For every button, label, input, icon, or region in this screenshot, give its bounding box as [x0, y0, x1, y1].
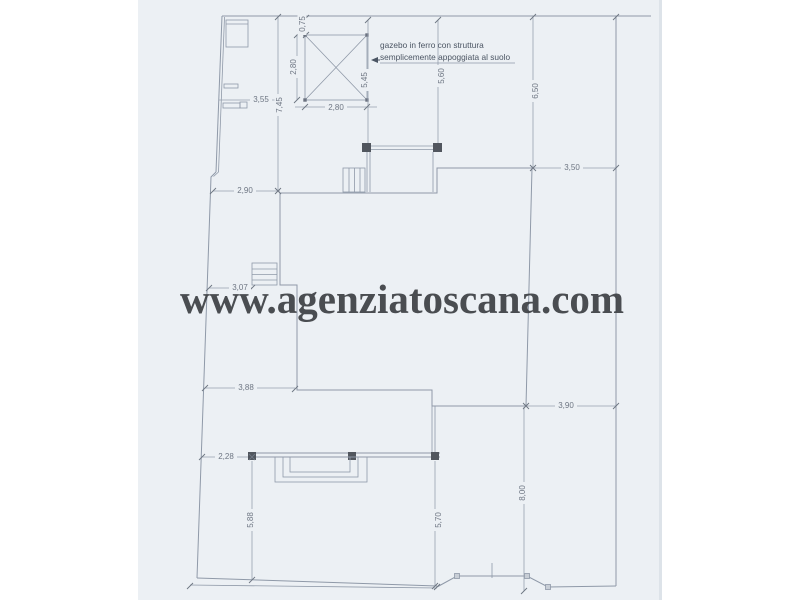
dim-label: 2,80 — [289, 59, 298, 75]
dim-label: 2,80 — [328, 103, 344, 112]
dim-label: 8,00 — [518, 485, 527, 501]
gate-post-node — [455, 574, 460, 579]
watermark-text: www.agenziatoscana.com — [180, 276, 624, 322]
scanned-floor-plan-page: 2,80 3,50 3,55 2,90 3,07 3,88 2,28 3,90 — [0, 0, 800, 600]
dim-label: 3,90 — [558, 401, 574, 410]
dim-label: 7,45 — [275, 97, 284, 113]
site-plan-svg: 2,80 3,50 3,55 2,90 3,07 3,88 2,28 3,90 — [0, 0, 800, 600]
dim-garden-right: 5,70 — [434, 509, 444, 531]
dim-gazebo-height: 2,80 — [289, 56, 299, 78]
dim-right-bottom: 3,90 — [555, 401, 577, 411]
dim-boundary-to-terrace: 5,60 — [437, 65, 447, 87]
annotation-line1: gazebo in ferro con struttura — [380, 40, 484, 50]
dim-label: 3,88 — [238, 383, 254, 392]
dim-gazebo-width: 2,80 — [325, 103, 347, 113]
dim-gazebo-to-building: 5,45 — [360, 69, 370, 91]
terrace-pillar — [362, 143, 371, 152]
dim-label: 5,60 — [437, 68, 446, 84]
dim-right-top: 3,50 — [561, 163, 583, 173]
dim-label: 3,55 — [253, 95, 269, 104]
gate-post-node — [525, 574, 530, 579]
terrace-pillar — [248, 452, 256, 460]
terrace-pillar — [348, 452, 356, 460]
dim-label: 2,90 — [237, 186, 253, 195]
dim-boundary-to-building: 6,50 — [531, 80, 541, 102]
terrace-pillar — [433, 143, 442, 152]
dim-setback-bottom: 2,28 — [215, 452, 237, 462]
dim-label: 5,88 — [246, 512, 255, 528]
dim-garden-center: 8,00 — [518, 482, 528, 504]
dim-gazebo-offset: 0,75 — [298, 13, 308, 35]
annotation-line2: semplicemente appoggiata al suolo — [380, 52, 510, 62]
paper-edge-shadow — [659, 0, 662, 600]
dim-left-upper: 7,45 — [275, 94, 285, 116]
dim-garden-left: 5,88 — [246, 509, 256, 531]
dim-setback-upper: 2,90 — [234, 186, 256, 196]
terrace-pillar — [431, 452, 439, 460]
dim-setback-lower: 3,88 — [235, 383, 257, 393]
dim-label: 5,70 — [434, 512, 443, 528]
dim-label: 0,75 — [298, 16, 307, 32]
dim-left-width: 3,55 — [250, 95, 272, 105]
dim-label: 6,50 — [531, 83, 540, 99]
dim-label: 2,28 — [218, 452, 234, 461]
dim-label: 3,50 — [564, 163, 580, 172]
gate-post-node — [546, 585, 551, 590]
dim-label: 5,45 — [360, 72, 369, 88]
